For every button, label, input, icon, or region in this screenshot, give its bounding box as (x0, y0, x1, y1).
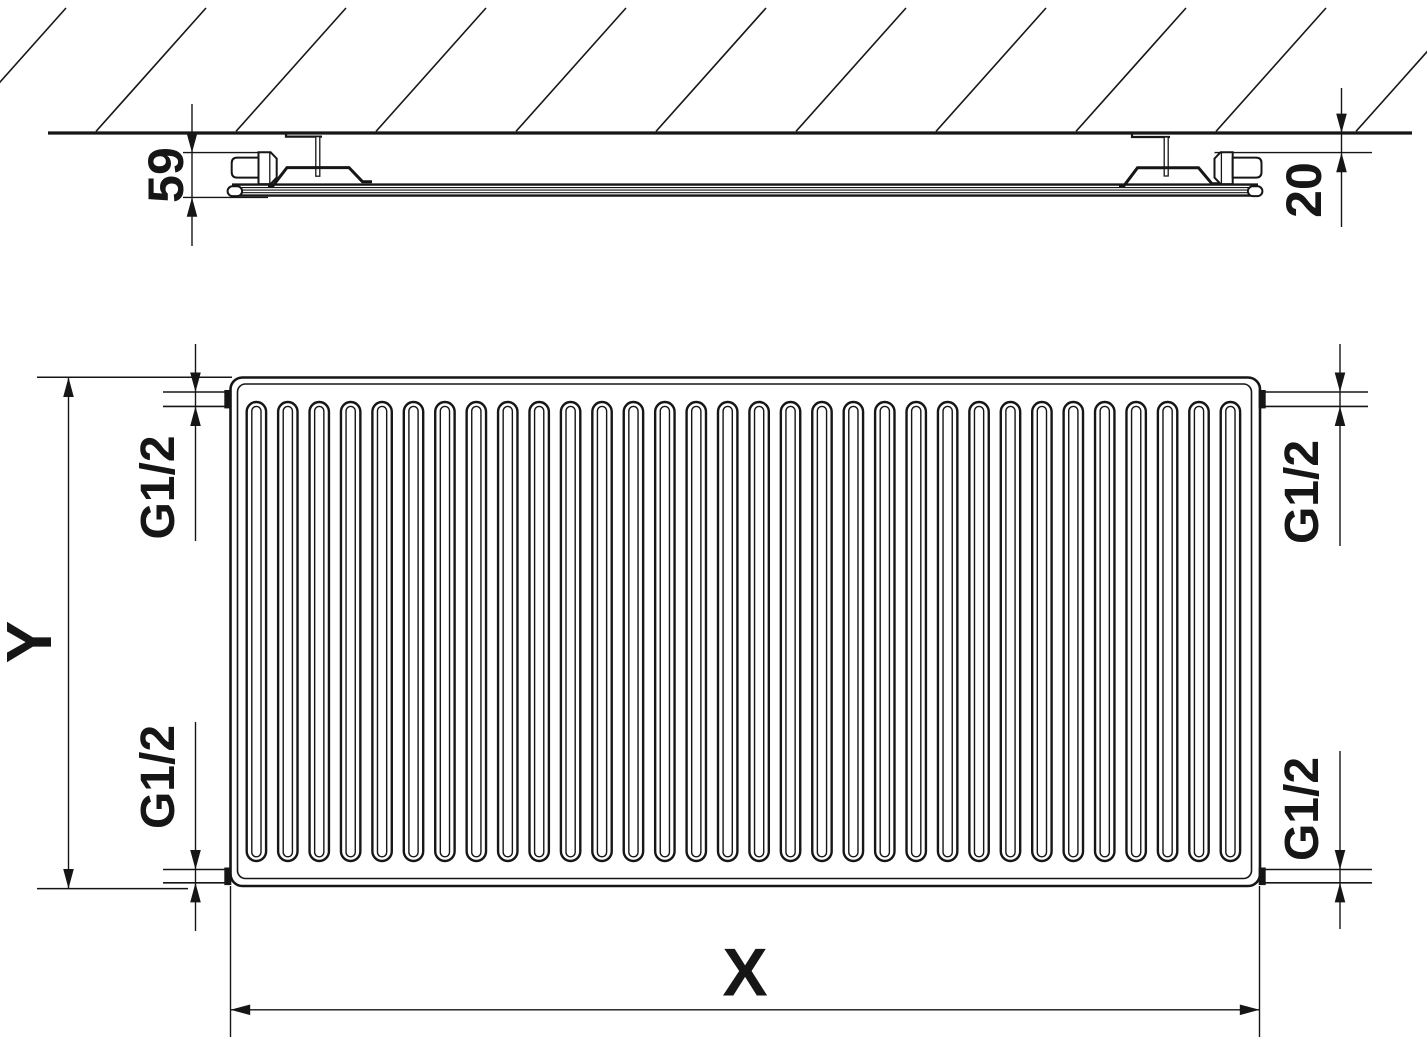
hatch-line (516, 8, 626, 131)
arrowhead-up-icon (1335, 883, 1346, 903)
arrowhead-down-icon (190, 373, 201, 393)
stub-flange (1259, 868, 1266, 886)
connection-label: G1/2 (132, 435, 185, 539)
dimension-width: X (231, 886, 1260, 1037)
width-label: X (722, 935, 767, 1011)
right-valve-fitting (1215, 152, 1262, 184)
arrowhead-down-icon (63, 869, 74, 889)
panel-right-end-cap (1248, 186, 1263, 196)
arrowhead-up-icon (190, 883, 201, 903)
wall-gap-label: 20 (1276, 162, 1332, 218)
connection-stub-bottom-right (1259, 868, 1372, 886)
dimension-conn-bottom-right: G1/2 (1276, 751, 1345, 929)
height-label: Y (0, 621, 65, 664)
dimension-conn-top-right: G1/2 (1276, 344, 1345, 546)
connection-stub-top-right (1259, 390, 1368, 408)
valve-nut (1215, 152, 1233, 184)
side-section-view: 59 20 (0, 8, 1427, 246)
radiator-drawing-page: 59 20 (0, 0, 1427, 1051)
front-view: G1/2 G1/2 G1/2 G1/2 Y (0, 344, 1372, 1037)
arrowhead-down-icon (1335, 850, 1346, 870)
dimension-conn-top-left: G1/2 (132, 344, 201, 541)
radiator-technical-drawing: 59 20 (0, 0, 1427, 1051)
left-mounting-bracket (268, 133, 372, 186)
arrowhead-up-icon (1336, 153, 1347, 173)
hatch-line (656, 8, 766, 131)
valve-body (1233, 158, 1262, 178)
bracket-pin (1164, 137, 1168, 176)
hatch-line (1356, 8, 1427, 131)
dimension-conn-bottom-left: G1/2 (132, 722, 201, 931)
valve-body (232, 158, 259, 178)
left-valve-fitting (232, 152, 277, 184)
stub-flange (1259, 390, 1266, 408)
right-mounting-bracket (1119, 133, 1230, 186)
hatch-line (1076, 8, 1186, 131)
arrowhead-right-icon (1240, 1005, 1260, 1016)
arrowhead-up-icon (190, 406, 201, 426)
arrowhead-down-icon (1336, 114, 1347, 133)
bracket-pin (316, 137, 320, 177)
connection-label: G1/2 (132, 725, 185, 829)
hatch-line (0, 8, 66, 131)
arrowhead-up-icon (1335, 406, 1346, 426)
hatch-line (236, 8, 346, 131)
radiator-outer-outline (231, 378, 1261, 887)
hatch-line (96, 8, 206, 131)
arrowhead-up-icon (63, 377, 74, 397)
arrowhead-down-icon (1335, 373, 1346, 393)
hatch-line (936, 8, 1046, 131)
depth-label: 59 (138, 147, 194, 203)
connection-stub-bottom-left (163, 868, 231, 886)
stub-flange (224, 868, 231, 886)
radiator-panel-section (228, 185, 1263, 197)
connection-stub-top-left (163, 390, 231, 408)
dimension-height: Y (0, 377, 232, 888)
arrowhead-left-icon (231, 1005, 251, 1016)
arrowhead-down-icon (190, 850, 201, 870)
connection-label: G1/2 (1276, 757, 1329, 861)
bracket-body (1119, 168, 1230, 186)
stub-flange (224, 390, 231, 408)
panel-left-end-cap (228, 186, 243, 196)
hatch-line (376, 8, 486, 131)
connection-label: G1/2 (1276, 440, 1329, 544)
wall-hatching (0, 8, 1427, 131)
hatch-line (796, 8, 906, 131)
valve-nut (259, 152, 277, 184)
hatch-line (1216, 8, 1326, 131)
